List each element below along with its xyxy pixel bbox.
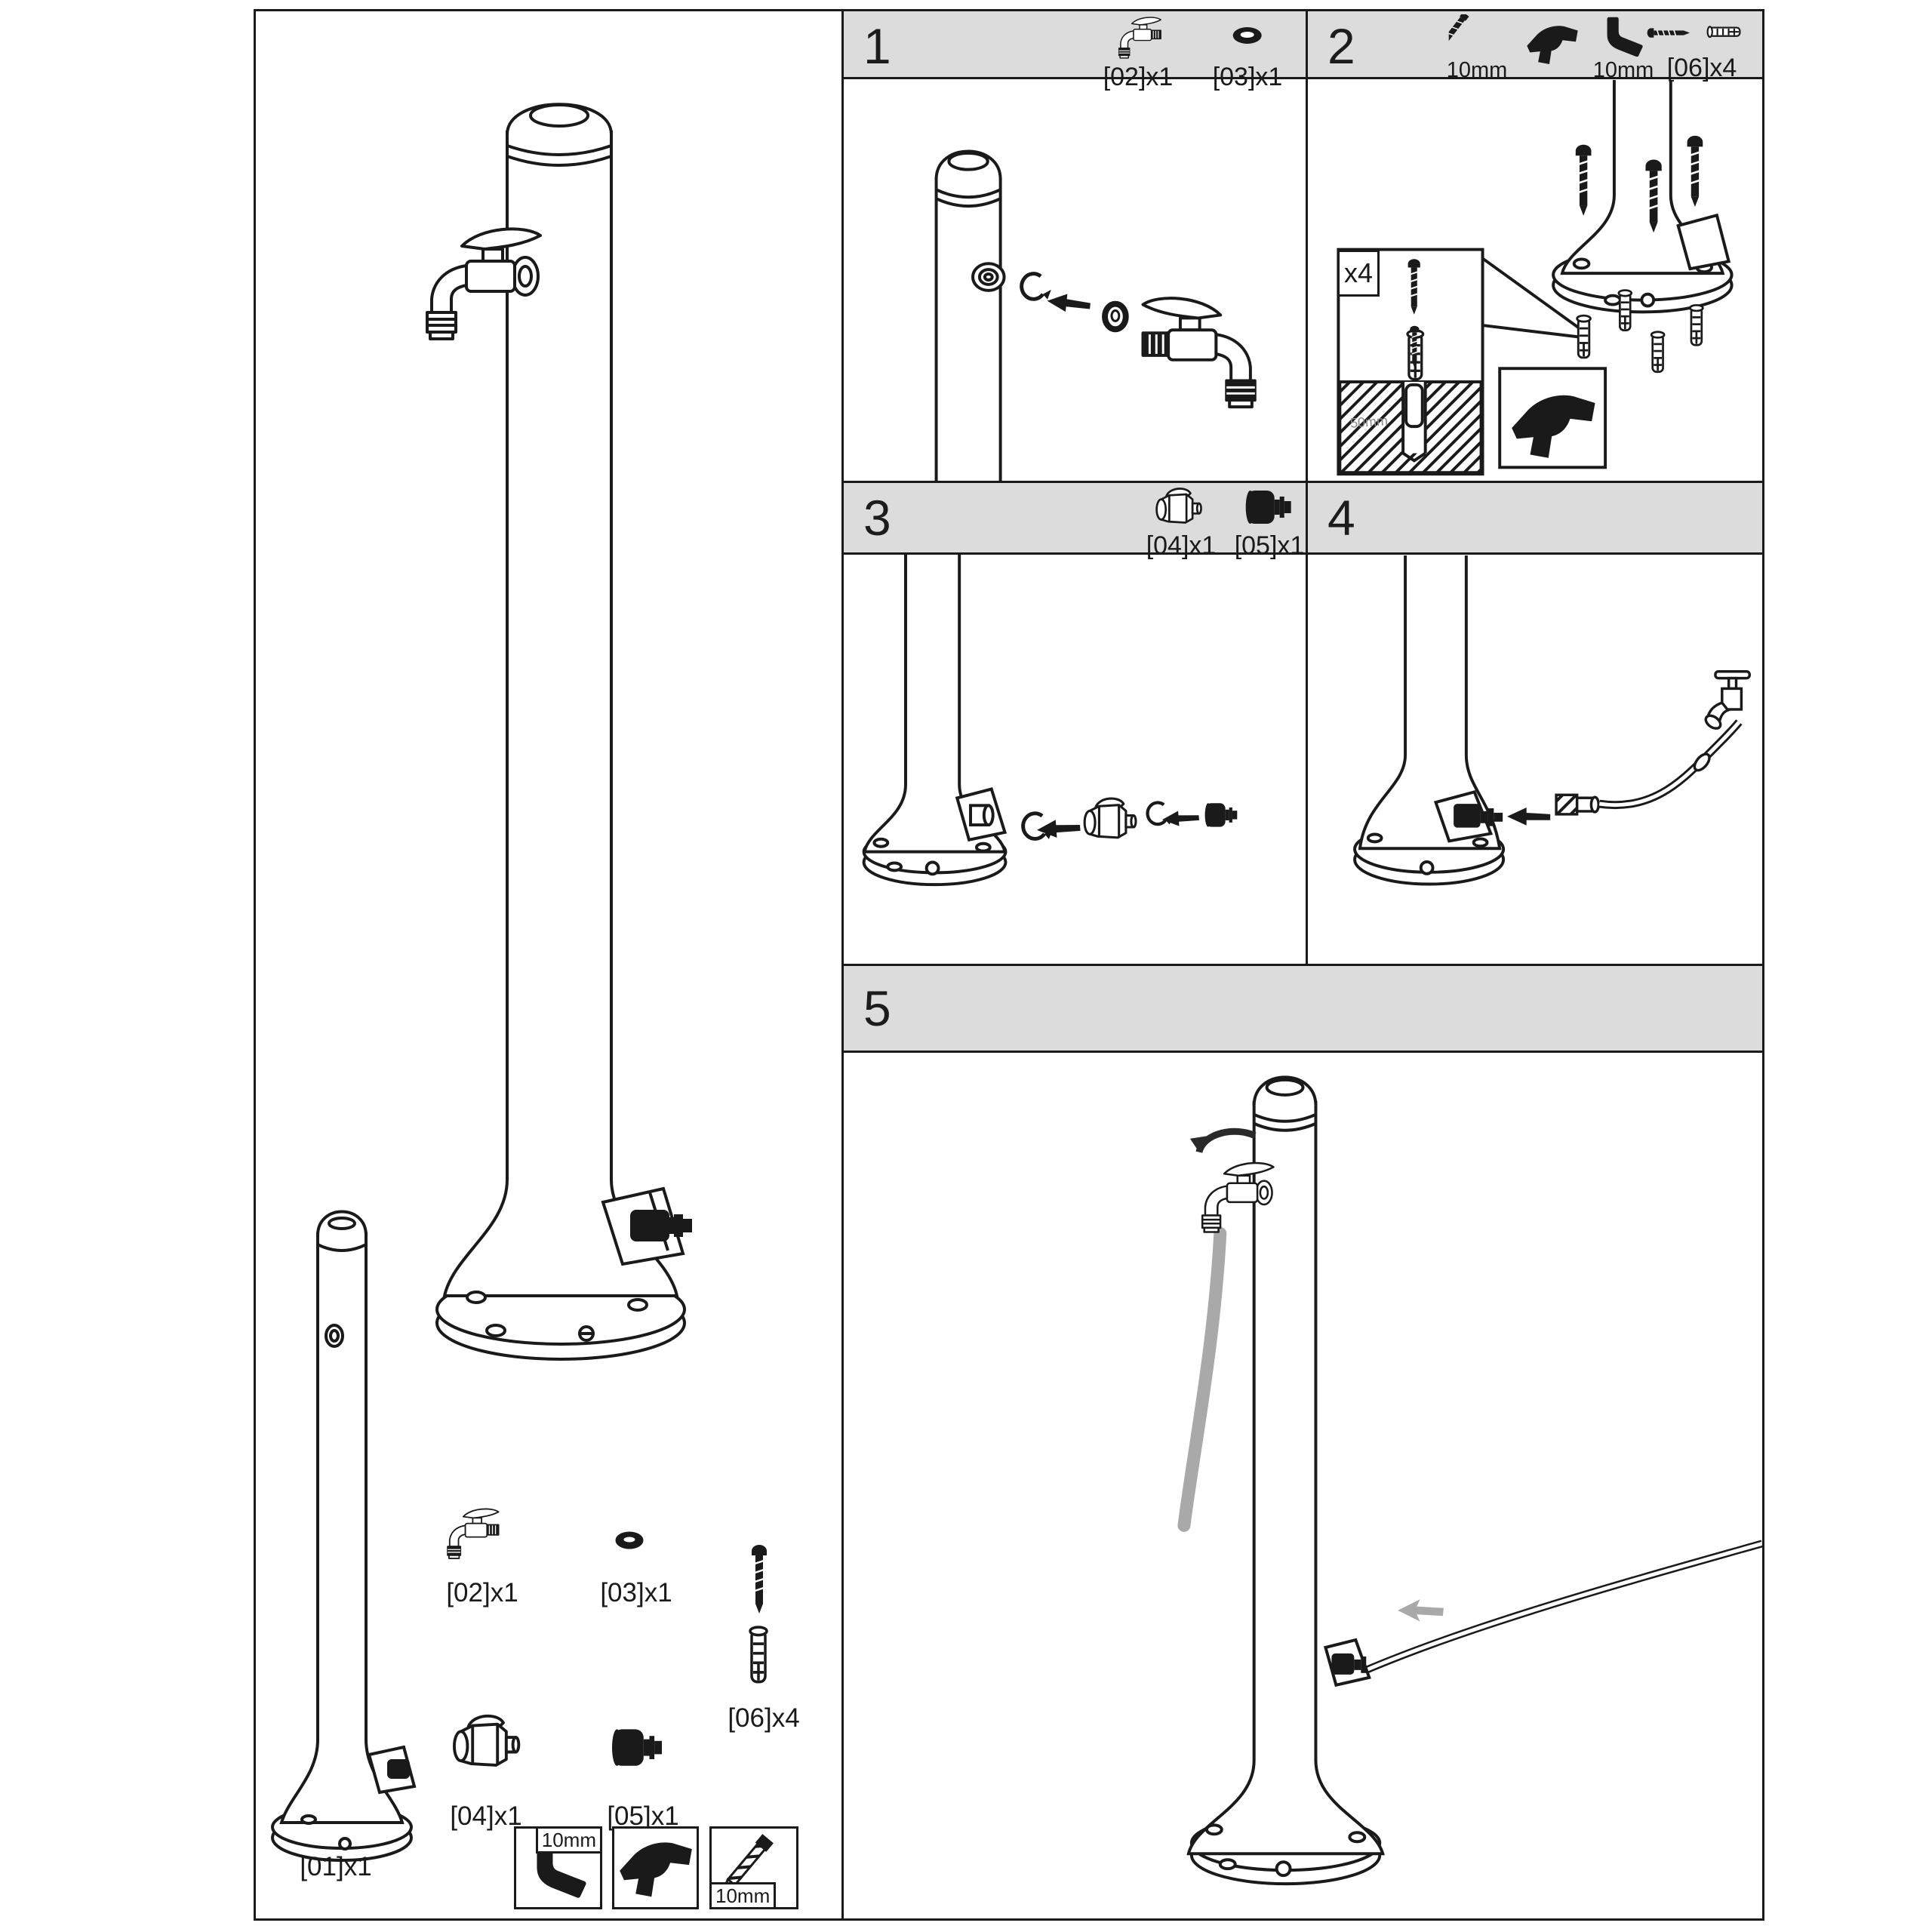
x4-label: x4 <box>1344 257 1373 289</box>
step-4-drawing <box>1308 555 1762 964</box>
tap-exploded <box>1143 298 1254 407</box>
adapter-icon <box>1244 486 1294 530</box>
tool-box-drill <box>612 1826 699 1909</box>
x4-callout: x4 <box>1337 250 1380 297</box>
part-04-label: [04]x1 <box>450 1801 521 1832</box>
part-06-screw-icon <box>752 1545 767 1614</box>
step-4-number: 4 <box>1327 489 1355 546</box>
step-2-part-06-label: [06]x4 <box>1667 54 1737 83</box>
step-2-number: 2 <box>1327 17 1355 75</box>
part-02-label: [02]x1 <box>446 1578 518 1608</box>
rotate-arrow-icon <box>1022 274 1051 300</box>
part-06-label: [06]x4 <box>728 1703 799 1734</box>
step-2-header: 2 10mm 10mm [06]x4 <box>1308 11 1762 79</box>
drill-depth-label: 50mm <box>1349 413 1388 431</box>
connect-arrow-icon <box>1507 808 1550 826</box>
step-5-panel: 5 <box>841 964 1764 1921</box>
allen-key-icon <box>1598 14 1648 57</box>
step-3-number: 3 <box>863 489 891 546</box>
supply-tap <box>1692 672 1750 773</box>
insert-arrow-2-icon <box>1161 810 1199 828</box>
step-3-part-05-badge: [05]x1 <box>1235 486 1305 561</box>
step-5-drawing <box>844 1053 1762 1918</box>
step-4-panel: 4 <box>1306 481 1764 966</box>
tool-box-drill-bit: 10mm <box>709 1826 798 1909</box>
supply-hose-outline <box>1366 1543 1762 1670</box>
bit-size-tag: 10mm <box>709 1882 776 1909</box>
part-02-tap-icon <box>448 1509 499 1558</box>
part-05-adapter-icon <box>612 1729 662 1765</box>
drill-icon <box>1525 20 1580 67</box>
overview-drawing <box>256 11 841 1918</box>
drill-icon <box>618 1835 694 1901</box>
step-1-number: 1 <box>863 17 891 75</box>
step-3-part-05-label: [05]x1 <box>1235 531 1305 561</box>
step-1-part-02-badge: [02]x1 <box>1100 14 1176 92</box>
turn-arrow <box>1199 1131 1255 1152</box>
step-3-part-04-label: [04]x1 <box>1146 531 1217 561</box>
tap-icon <box>1100 14 1176 61</box>
step-2-bit-badge: 10mm <box>1447 14 1508 83</box>
wrench-size-tag: 10mm <box>536 1826 602 1854</box>
valve-assembly <box>1454 804 1503 828</box>
gray-hose <box>1184 1233 1220 1525</box>
overview-panel: [02]x1 [03]x1 [06]x4 [04]x1 [05]x1 [01]x… <box>254 9 844 1921</box>
step-3-drawing <box>844 555 1306 964</box>
step-1-part-03-label: [03]x1 <box>1213 63 1283 92</box>
insert-arrow-icon <box>1046 292 1091 315</box>
step-3-header: 3 [04]x1 [05]x1 <box>844 483 1306 555</box>
valve-icon <box>1154 486 1208 530</box>
part-03-label: [03]x1 <box>600 1578 672 1608</box>
step-3-panel: 3 [04]x1 [05]x1 <box>841 481 1308 966</box>
step-4-header: 4 <box>1308 483 1762 555</box>
step-1-panel: 1 [02]x1 [03]x1 <box>841 9 1308 483</box>
o-ring-icon <box>1228 14 1267 61</box>
part-06-plug-icon <box>750 1627 767 1681</box>
step-1-part-02-label: [02]x1 <box>1103 63 1174 92</box>
step-1-part-03-badge: [03]x1 <box>1213 14 1283 92</box>
tool-box-wrench: 10mm <box>514 1826 602 1909</box>
hose-connector <box>1556 795 1598 814</box>
step-2-part-06-badge: [06]x4 <box>1645 14 1758 83</box>
screw-and-plug-icon <box>1645 14 1758 52</box>
step-2-panel: 2 10mm 10mm [06]x4 <box>1306 9 1764 483</box>
adapter-exploded <box>1205 803 1238 826</box>
step-1-drawing <box>844 79 1306 481</box>
part-03-oring-icon <box>616 1532 643 1549</box>
instruction-sheet: [02]x1 [03]x1 [06]x4 [04]x1 [05]x1 [01]x… <box>0 0 1932 1932</box>
step-1-header: 1 [02]x1 [03]x1 <box>844 11 1306 79</box>
flow-arrow <box>1398 1599 1444 1621</box>
part-04-valve-icon <box>454 1716 518 1765</box>
step-2-bit-size: 10mm <box>1447 58 1508 83</box>
supply-hose-outline <box>1599 722 1739 805</box>
step-3-part-04-badge: [04]x1 <box>1146 486 1217 561</box>
step-5-header: 5 <box>844 966 1762 1053</box>
part-01-label: [01]x1 <box>300 1852 371 1882</box>
step-5-number: 5 <box>863 980 891 1037</box>
drill-bit-icon <box>1449 14 1505 57</box>
valve-exploded <box>1084 798 1136 838</box>
